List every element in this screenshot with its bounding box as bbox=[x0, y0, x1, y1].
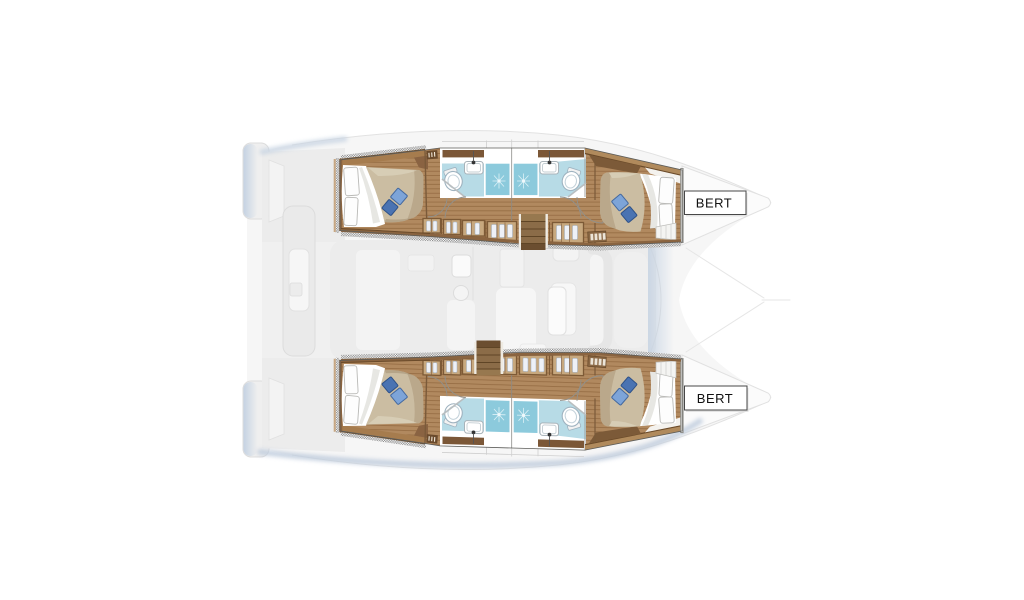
svg-text:BERT: BERT bbox=[696, 196, 732, 211]
svg-text:BERT: BERT bbox=[697, 391, 733, 406]
